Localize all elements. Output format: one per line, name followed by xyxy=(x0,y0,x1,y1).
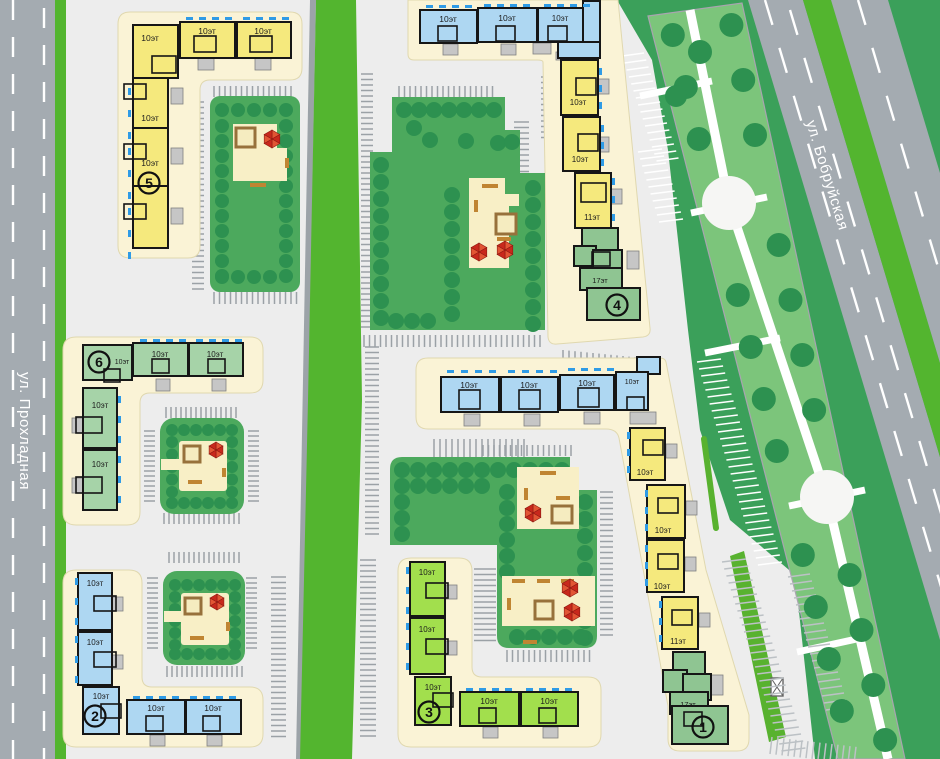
bench-icon xyxy=(497,237,511,241)
entrance-porch xyxy=(533,43,551,54)
floor-label: 10эт xyxy=(578,378,596,388)
balcony-mark xyxy=(645,545,648,552)
tree-icon xyxy=(525,282,541,298)
floor-label: 10эт xyxy=(141,113,159,123)
bench-icon xyxy=(190,636,204,640)
sandbox-icon xyxy=(535,601,553,619)
tree-icon xyxy=(226,461,238,473)
entrance-porch xyxy=(212,379,226,391)
balcony-mark xyxy=(229,696,236,699)
tree-icon xyxy=(279,239,293,253)
balcony-mark xyxy=(466,688,473,691)
balcony-mark xyxy=(523,4,530,7)
bench-icon xyxy=(507,598,511,610)
entrance-porch xyxy=(156,379,170,391)
tree-icon xyxy=(394,494,410,510)
balcony-mark xyxy=(426,5,433,8)
entrance-porch xyxy=(699,613,710,627)
tree-icon xyxy=(229,591,241,603)
balcony-mark xyxy=(552,688,559,691)
tree-icon xyxy=(215,164,229,178)
balcony-mark xyxy=(75,656,78,663)
tree-icon xyxy=(394,526,410,542)
tree-icon xyxy=(373,174,389,190)
tree-icon xyxy=(499,516,515,532)
marker-number: 1 xyxy=(699,719,707,735)
balcony-mark xyxy=(128,252,131,259)
tree-icon xyxy=(471,102,487,118)
balcony-mark xyxy=(222,339,229,342)
tree-icon xyxy=(767,233,791,257)
tree-icon xyxy=(373,242,389,258)
tree-icon xyxy=(214,424,226,436)
balcony-mark xyxy=(439,5,446,8)
balcony-mark xyxy=(659,601,662,608)
sandbox-icon xyxy=(496,214,516,234)
balcony-mark xyxy=(128,148,131,155)
balcony-mark xyxy=(544,4,551,7)
balcony-mark xyxy=(128,230,131,237)
tree-icon xyxy=(229,615,241,627)
tree-icon xyxy=(215,239,229,253)
tree-icon xyxy=(178,424,190,436)
tree-icon xyxy=(190,497,202,509)
tree-icon xyxy=(420,313,436,329)
bench-icon xyxy=(537,579,550,583)
tree-icon xyxy=(577,562,593,578)
balcony-mark xyxy=(118,416,121,423)
tree-icon xyxy=(557,629,573,645)
balcony-mark xyxy=(75,578,78,585)
floor-label: 10эт xyxy=(207,350,224,359)
building-part[interactable] xyxy=(558,42,600,58)
tree-icon xyxy=(394,510,410,526)
tree-icon xyxy=(217,579,229,591)
entrance-porch xyxy=(171,148,183,164)
balcony-mark xyxy=(461,370,468,373)
tree-icon xyxy=(215,209,229,223)
tree-icon xyxy=(231,270,245,284)
tree-icon xyxy=(850,618,874,642)
balcony-mark xyxy=(128,88,131,95)
tree-icon xyxy=(525,231,541,247)
site-plan: ул. Прохладная ул. Бобруйская xyxy=(0,0,940,759)
balcony-mark xyxy=(282,17,289,20)
tree-icon xyxy=(504,134,520,150)
floor-label: 10эт xyxy=(520,380,538,390)
tree-icon xyxy=(474,462,490,478)
entrance-porch xyxy=(72,478,83,493)
floor-label: 10эт xyxy=(425,683,442,692)
tree-icon xyxy=(441,102,457,118)
balcony-mark xyxy=(479,688,486,691)
tree-icon xyxy=(665,85,687,107)
balcony-mark xyxy=(75,598,78,605)
balcony-mark xyxy=(269,17,276,20)
tree-icon xyxy=(279,224,293,238)
tree-icon xyxy=(422,132,438,148)
floor-label: 10эт xyxy=(92,401,109,410)
tree-icon xyxy=(404,313,420,329)
tree-icon xyxy=(279,254,293,268)
tree-icon xyxy=(229,603,241,615)
tree-icon xyxy=(226,449,238,461)
balcony-mark xyxy=(497,4,504,7)
floor-label: 10эт xyxy=(540,696,558,706)
tree-icon xyxy=(226,486,238,498)
tree-icon xyxy=(215,224,229,238)
bench-icon xyxy=(556,496,570,500)
balcony-mark xyxy=(489,370,496,373)
floor-label: 10эт xyxy=(115,359,130,366)
floor-label: 10эт xyxy=(419,625,436,634)
tree-icon xyxy=(444,221,460,237)
floor-label: 10эт xyxy=(419,568,436,577)
tree-icon xyxy=(181,579,193,591)
balcony-mark xyxy=(645,490,648,497)
entrance-porch xyxy=(627,251,639,269)
tree-icon xyxy=(373,276,389,292)
entrance-porch xyxy=(72,418,83,433)
tree-icon xyxy=(205,648,217,660)
tree-icon xyxy=(394,478,410,494)
balcony-mark xyxy=(406,567,409,574)
tree-icon xyxy=(442,478,458,494)
bench-icon xyxy=(226,622,230,631)
balcony-mark xyxy=(599,102,602,109)
balcony-mark xyxy=(128,192,131,199)
entrance-porch xyxy=(112,597,123,611)
tree-icon xyxy=(166,497,178,509)
tree-icon xyxy=(231,103,245,117)
tree-icon xyxy=(474,478,490,494)
entrance-porch xyxy=(483,727,498,738)
entrance-porch xyxy=(150,735,165,746)
building-part[interactable] xyxy=(133,186,168,248)
balcony-mark xyxy=(196,339,203,342)
balcony-mark xyxy=(235,339,242,342)
balcony-mark xyxy=(627,466,630,473)
tree-icon xyxy=(279,194,293,208)
tree-icon xyxy=(525,316,541,332)
tree-icon xyxy=(444,272,460,288)
tree-icon xyxy=(458,478,474,494)
tree-icon xyxy=(830,699,854,723)
tree-icon xyxy=(442,462,458,478)
balcony-mark xyxy=(645,524,648,531)
entrance-porch xyxy=(666,444,677,458)
entrance-porch xyxy=(685,557,696,571)
balcony-mark xyxy=(612,196,615,203)
balcony-mark xyxy=(199,17,206,20)
floor-label: 10эт xyxy=(460,380,478,390)
tree-icon xyxy=(215,149,229,163)
balcony-mark xyxy=(570,4,577,7)
tree-icon xyxy=(661,23,685,47)
floor-label: 10эт xyxy=(147,703,165,713)
balcony-mark xyxy=(475,370,482,373)
tree-icon xyxy=(202,424,214,436)
tree-icon xyxy=(426,478,442,494)
tree-icon xyxy=(394,462,410,478)
tree-icon xyxy=(229,627,241,639)
balcony-mark xyxy=(75,636,78,643)
playground-path xyxy=(164,611,183,622)
entrance-porch xyxy=(171,208,183,224)
floor-label: 10эт xyxy=(654,582,671,591)
tree-icon xyxy=(499,484,515,500)
balcony-mark xyxy=(133,696,140,699)
balcony-mark xyxy=(612,214,615,221)
entrance-porch xyxy=(501,44,516,55)
balcony-mark xyxy=(599,68,602,75)
entrance-porch xyxy=(207,735,222,746)
tree-icon xyxy=(743,123,767,147)
balcony-mark xyxy=(539,688,546,691)
tree-icon xyxy=(444,289,460,305)
balcony-mark xyxy=(128,110,131,117)
tree-icon xyxy=(169,579,181,591)
tree-icon xyxy=(215,134,229,148)
tree-icon xyxy=(525,180,541,196)
tree-icon xyxy=(373,225,389,241)
tree-icon xyxy=(205,579,217,591)
tree-icon xyxy=(804,595,828,619)
entrance-porch xyxy=(543,727,558,738)
balcony-mark xyxy=(447,370,454,373)
balcony-mark xyxy=(594,368,601,371)
tree-icon xyxy=(486,102,502,118)
tree-icon xyxy=(229,579,241,591)
tree-icon xyxy=(687,127,711,151)
balcony-mark xyxy=(159,696,166,699)
balcony-mark xyxy=(510,4,517,7)
marker-number: 3 xyxy=(425,704,433,720)
balcony-mark xyxy=(128,132,131,139)
tree-icon xyxy=(779,288,803,312)
floor-label: 10эт xyxy=(93,692,110,701)
balcony-mark xyxy=(406,623,409,630)
balcony-mark xyxy=(128,170,131,177)
balcony-mark xyxy=(406,663,409,670)
floor-label: 10эт xyxy=(625,379,640,386)
tree-icon xyxy=(215,270,229,284)
street-label-prohladnaya: ул. Прохладная xyxy=(16,372,33,490)
balcony-mark xyxy=(557,4,564,7)
floor-label: 10эт xyxy=(552,14,569,23)
tree-icon xyxy=(525,299,541,315)
tree-icon xyxy=(279,103,293,117)
tree-icon xyxy=(169,639,181,651)
tree-icon xyxy=(247,270,261,284)
tree-icon xyxy=(388,313,404,329)
tree-icon xyxy=(410,462,426,478)
floor-label: 10эт xyxy=(141,33,159,43)
tree-icon xyxy=(577,528,593,544)
tree-icon xyxy=(541,629,557,645)
tree-icon xyxy=(410,478,426,494)
balcony-mark xyxy=(186,17,193,20)
balcony-mark xyxy=(216,696,223,699)
building-c6-4[interactable] xyxy=(83,450,117,510)
tree-icon xyxy=(739,335,763,359)
balcony-mark xyxy=(243,17,250,20)
bench-icon xyxy=(523,640,537,644)
floor-label: 10эт xyxy=(572,155,589,164)
tree-icon xyxy=(444,306,460,322)
tree-icon xyxy=(444,238,460,254)
tree-icon xyxy=(456,102,472,118)
balcony-mark xyxy=(645,579,648,586)
balcony-mark xyxy=(140,339,147,342)
balcony-mark xyxy=(550,370,557,373)
balcony-mark xyxy=(645,562,648,569)
tree-icon xyxy=(802,398,826,422)
floor-label: 10эт xyxy=(637,468,654,477)
entrance-porch xyxy=(464,414,480,426)
tree-icon xyxy=(247,103,261,117)
floor-label: 11эт xyxy=(584,213,600,222)
tree-icon xyxy=(229,639,241,651)
floor-label: 10эт xyxy=(480,696,498,706)
entrance-porch xyxy=(255,58,271,70)
tree-icon xyxy=(411,102,427,118)
sandbox-icon xyxy=(236,128,255,147)
sandbox-icon xyxy=(184,446,200,462)
tree-icon xyxy=(373,157,389,173)
tree-icon xyxy=(726,283,750,307)
tree-icon xyxy=(215,103,229,117)
tree-icon xyxy=(373,208,389,224)
balcony-mark xyxy=(406,607,409,614)
tree-icon xyxy=(193,648,205,660)
balcony-mark xyxy=(146,696,153,699)
tree-icon xyxy=(279,269,293,283)
tree-icon xyxy=(499,548,515,564)
balcony-mark xyxy=(212,17,219,20)
tree-icon xyxy=(373,293,389,309)
floor-label: 10эт xyxy=(152,350,169,359)
bench-icon xyxy=(222,468,226,477)
tree-icon xyxy=(217,648,229,660)
tree-icon xyxy=(215,179,229,193)
balcony-mark xyxy=(583,4,590,7)
balcony-mark xyxy=(522,370,529,373)
balcony-mark xyxy=(166,339,173,342)
tree-icon xyxy=(752,387,776,411)
floor-label: 10эт xyxy=(254,26,272,36)
floor-label: 10эт xyxy=(204,703,222,713)
balcony-mark xyxy=(484,4,491,7)
bench-icon xyxy=(250,183,266,187)
tree-icon xyxy=(525,214,541,230)
balcony-mark xyxy=(526,688,533,691)
marker-number: 6 xyxy=(95,354,103,370)
tree-icon xyxy=(719,13,743,37)
balcony-mark xyxy=(75,618,78,625)
balcony-mark xyxy=(118,456,121,463)
tree-icon xyxy=(861,673,885,697)
balcony-mark xyxy=(118,496,121,503)
tree-icon xyxy=(577,511,593,527)
floor-label: 10эт xyxy=(92,460,109,469)
floor-label: 17эт xyxy=(680,700,696,709)
balcony-mark xyxy=(203,696,210,699)
bench-icon xyxy=(474,200,478,212)
balcony-mark xyxy=(75,676,78,683)
tree-icon xyxy=(458,133,474,149)
tree-icon xyxy=(444,255,460,271)
tree-icon xyxy=(426,462,442,478)
balcony-mark xyxy=(465,5,472,8)
tree-icon xyxy=(577,494,593,510)
balcony-mark xyxy=(601,142,604,149)
entrance-porch xyxy=(630,412,656,424)
tree-icon xyxy=(202,497,214,509)
balcony-mark xyxy=(581,368,588,371)
road-prohladnaya: ул. Прохладная xyxy=(0,0,66,759)
balcony-mark xyxy=(492,688,499,691)
bench-icon xyxy=(188,480,202,484)
balcony-mark xyxy=(505,688,512,691)
balcony-mark xyxy=(508,370,515,373)
balcony-mark xyxy=(601,125,604,132)
entrance-porch xyxy=(686,501,697,515)
balcony-mark xyxy=(627,449,630,456)
tree-icon xyxy=(263,270,277,284)
tree-icon xyxy=(373,310,389,326)
balcony-mark xyxy=(128,208,131,215)
tree-icon xyxy=(817,647,841,671)
tree-icon xyxy=(577,545,593,561)
balcony-mark xyxy=(406,643,409,650)
floor-label: 17эт xyxy=(592,276,608,285)
building-c6-3[interactable] xyxy=(83,388,117,448)
balcony-mark xyxy=(659,618,662,625)
floor-label: 11эт xyxy=(670,637,686,646)
tree-icon xyxy=(499,500,515,516)
marker-number: 2 xyxy=(91,708,99,724)
balcony-mark xyxy=(153,339,160,342)
balcony-mark xyxy=(118,476,121,483)
tree-icon xyxy=(426,102,442,118)
floor-label: 10эт xyxy=(570,98,587,107)
floor-label: 10эт xyxy=(87,579,104,588)
tree-icon xyxy=(193,579,205,591)
tree-icon xyxy=(525,248,541,264)
balcony-mark xyxy=(190,696,197,699)
tree-icon xyxy=(178,497,190,509)
plaza-circle xyxy=(800,470,854,524)
balcony-mark xyxy=(645,507,648,514)
tree-icon xyxy=(490,462,506,478)
balcony-mark xyxy=(118,396,121,403)
tree-icon xyxy=(509,629,525,645)
tree-icon xyxy=(490,135,506,151)
tree-icon xyxy=(226,497,238,509)
balcony-mark xyxy=(536,370,543,373)
tree-icon xyxy=(215,194,229,208)
tree-icon xyxy=(166,486,178,498)
tree-icon xyxy=(279,134,293,148)
tree-icon xyxy=(181,648,193,660)
tree-icon xyxy=(166,449,178,461)
tree-icon xyxy=(373,259,389,275)
tree-icon xyxy=(765,439,789,463)
tree-icon xyxy=(731,68,755,92)
balcony-mark xyxy=(172,696,179,699)
tree-icon xyxy=(279,119,293,133)
